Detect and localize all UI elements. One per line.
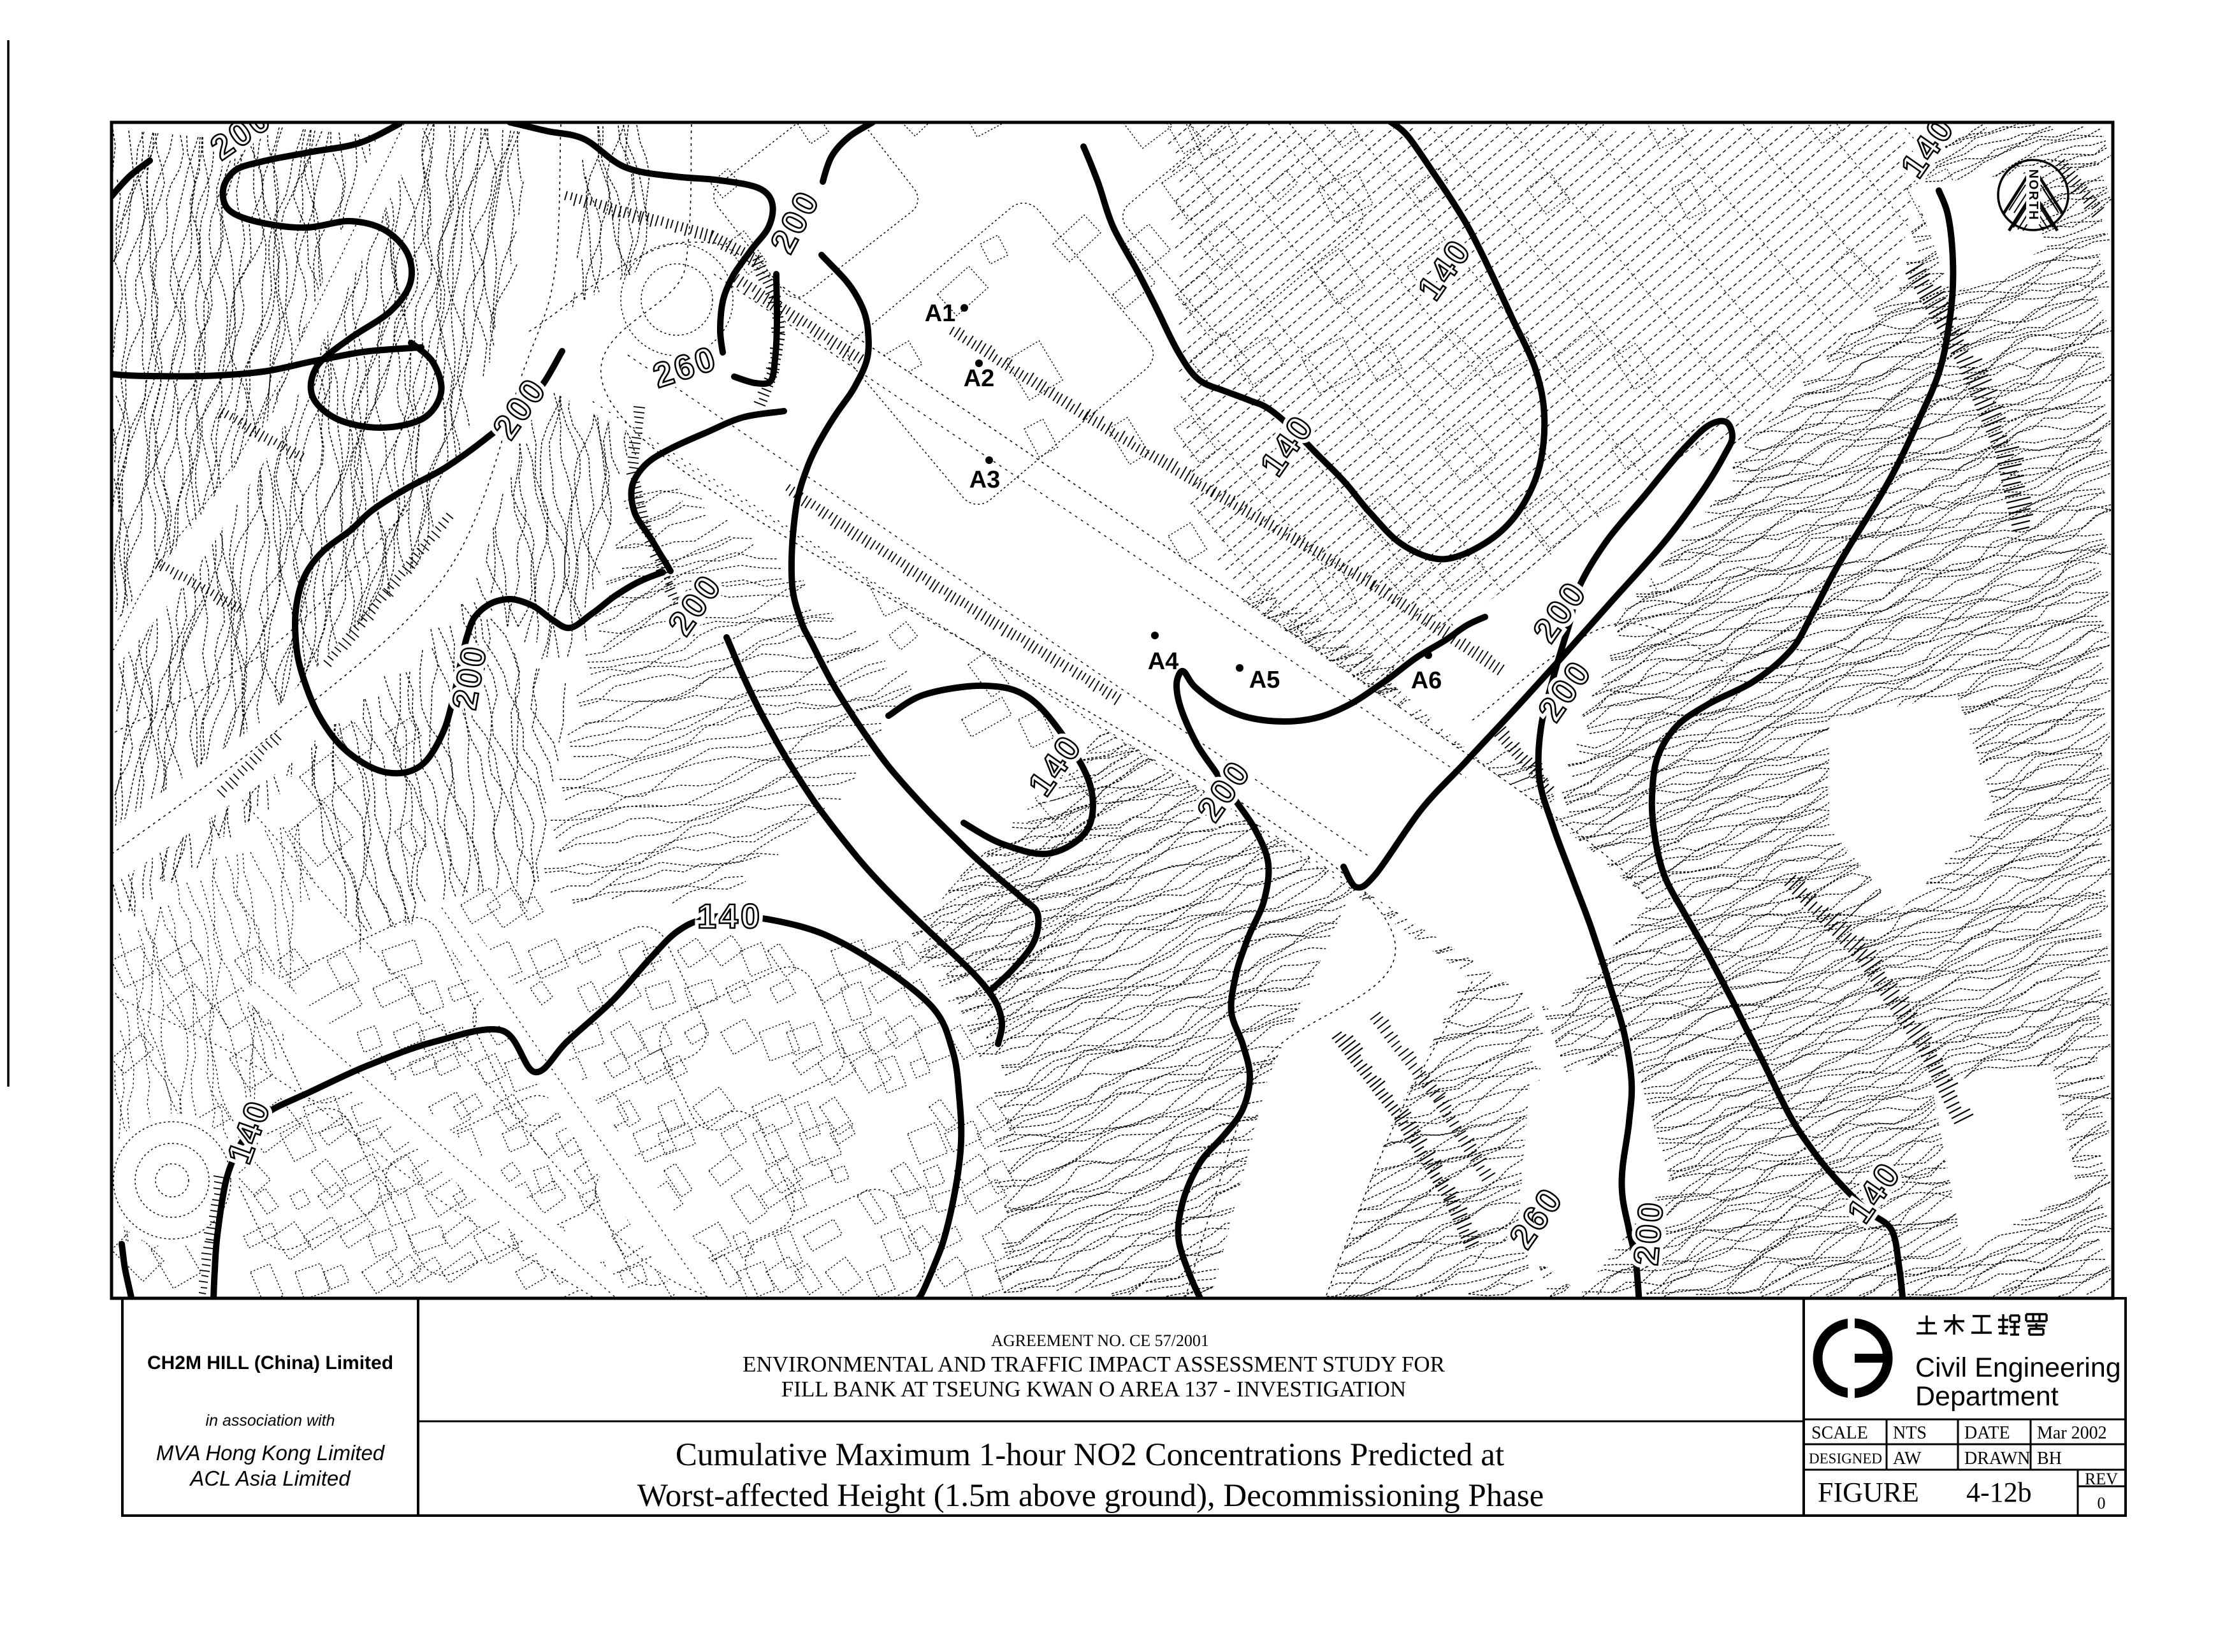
- svg-text:Worst-affected Height (1.5m ab: Worst-affected Height (1.5m above ground…: [637, 1478, 1544, 1514]
- svg-text:BH: BH: [2037, 1449, 2062, 1468]
- svg-text:DRAWN: DRAWN: [1964, 1449, 2031, 1468]
- svg-text:A4: A4: [1148, 648, 1179, 675]
- svg-text:NTS: NTS: [1893, 1423, 1927, 1443]
- svg-text:A5: A5: [1249, 667, 1280, 693]
- svg-text:REV: REV: [2085, 1470, 2118, 1488]
- svg-text:AGREEMENT NO. CE 57/2001: AGREEMENT NO. CE 57/2001: [991, 1331, 1209, 1350]
- svg-text:CH2M HILL (China) Limited: CH2M HILL (China) Limited: [147, 1352, 393, 1373]
- svg-text:FIGURE: FIGURE: [1818, 1477, 1919, 1508]
- svg-text:Mar 2002: Mar 2002: [2037, 1423, 2107, 1443]
- svg-text:MVA Hong Kong Limited: MVA Hong Kong Limited: [156, 1441, 386, 1465]
- svg-text:A6: A6: [1411, 667, 1442, 694]
- svg-text:A1: A1: [925, 300, 956, 327]
- svg-text:A2: A2: [964, 365, 995, 392]
- svg-text:DATE: DATE: [1964, 1423, 2010, 1443]
- svg-text:NORTH: NORTH: [2026, 169, 2040, 221]
- svg-text:FILL BANK AT TSEUNG KWAN O ARE: FILL BANK AT TSEUNG KWAN O AREA 137 - IN…: [781, 1377, 1406, 1402]
- svg-text:A3: A3: [969, 467, 1001, 493]
- svg-text:SCALE: SCALE: [1811, 1423, 1868, 1443]
- svg-text:DESIGNED: DESIGNED: [1809, 1451, 1882, 1467]
- svg-text:Civil Engineering: Civil Engineering: [1915, 1352, 2121, 1383]
- svg-text:4-12b: 4-12b: [1966, 1477, 2032, 1508]
- svg-text:ACL Asia Limited: ACL Asia Limited: [189, 1467, 351, 1490]
- svg-text:Cumulative Maximum 1-hour NO2: Cumulative Maximum 1-hour NO2 Concentrat…: [676, 1437, 1504, 1473]
- svg-text:140: 140: [697, 897, 762, 936]
- svg-text:200: 200: [1627, 1199, 1671, 1267]
- svg-text:in association with: in association with: [206, 1412, 335, 1430]
- svg-text:Department: Department: [1915, 1381, 2059, 1412]
- svg-text:AW: AW: [1893, 1449, 1922, 1468]
- svg-text:ENVIRONMENTAL AND TRAFFIC IMPA: ENVIRONMENTAL AND TRAFFIC IMPACT ASSESSM…: [743, 1352, 1446, 1377]
- svg-text:0: 0: [2098, 1494, 2106, 1512]
